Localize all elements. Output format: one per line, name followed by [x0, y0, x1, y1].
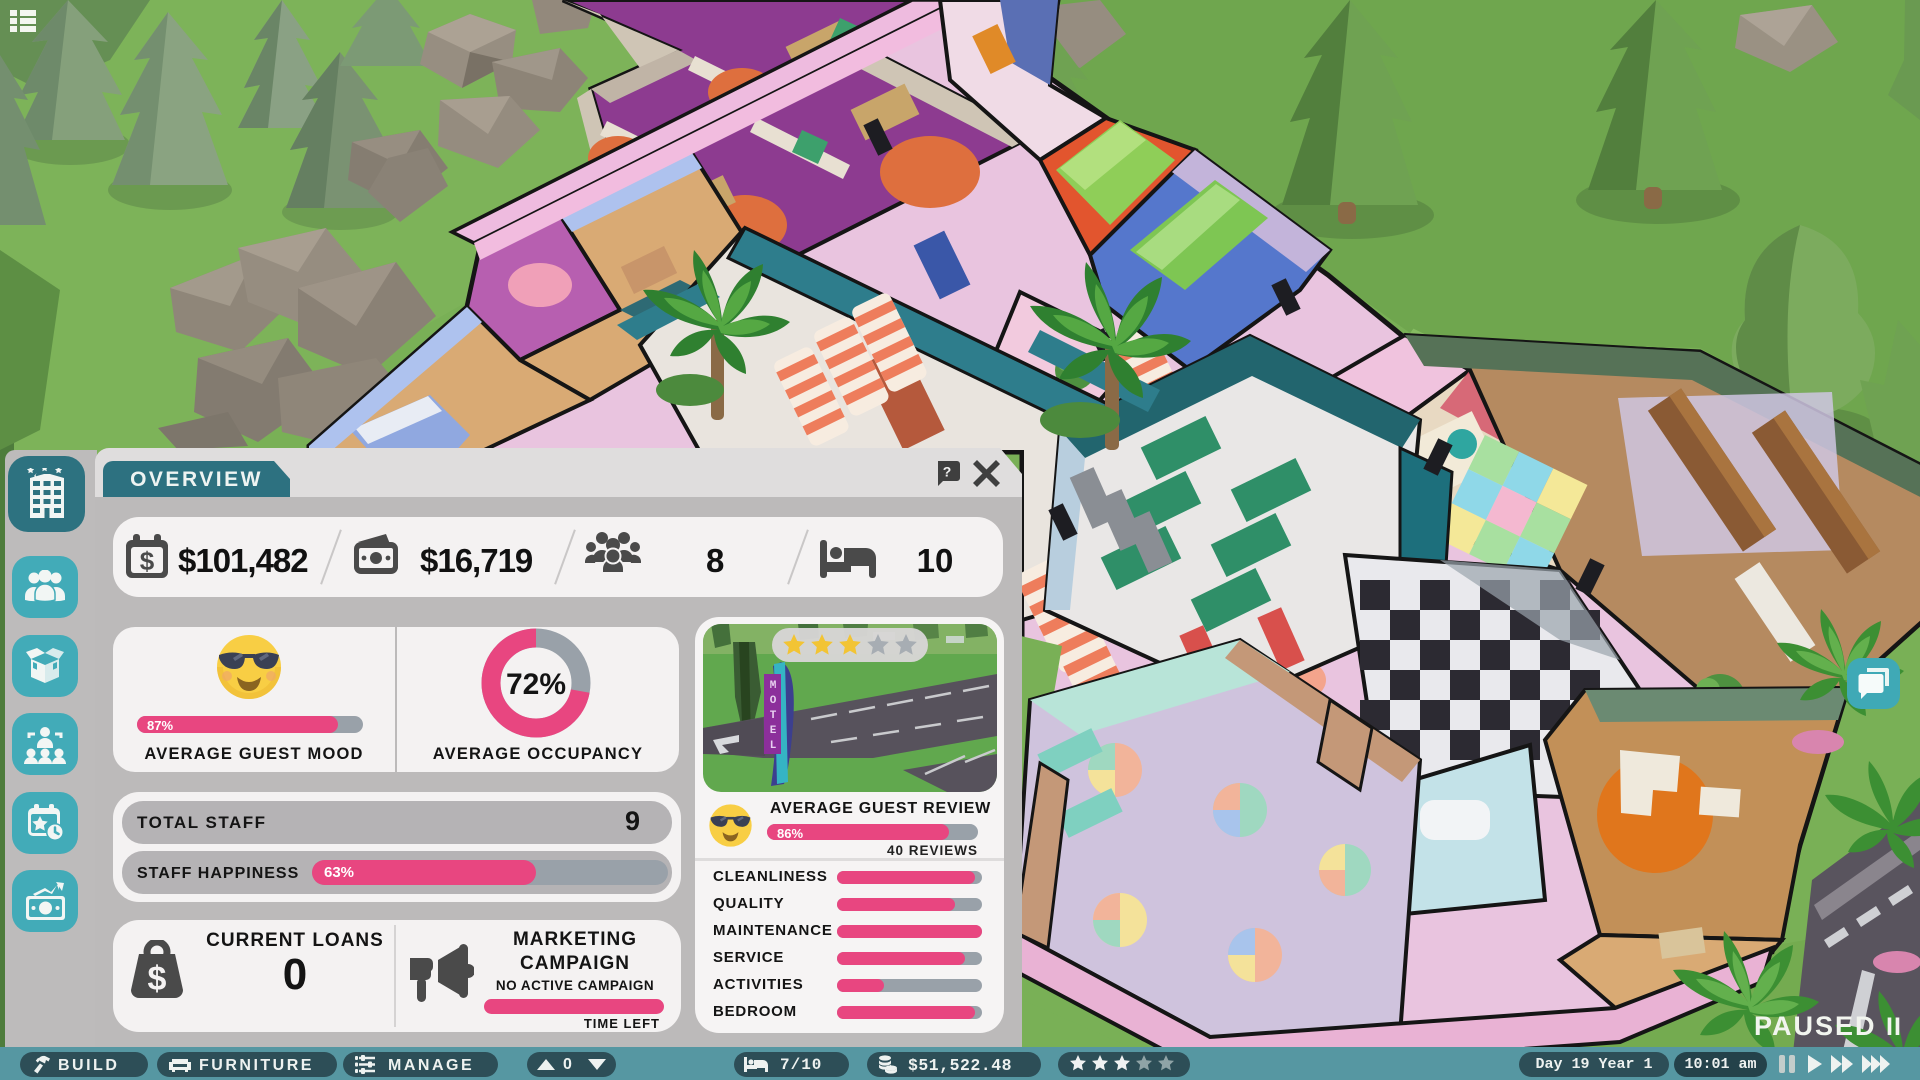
svg-text:$: $	[148, 960, 167, 998]
svg-text:$: $	[140, 546, 155, 576]
svg-text:M: M	[770, 680, 777, 692]
svg-text:72%: 72%	[506, 668, 566, 701]
svg-text:E: E	[770, 725, 777, 737]
svg-text:L: L	[770, 740, 777, 752]
svg-text:?: ?	[943, 464, 952, 480]
svg-text:T: T	[770, 710, 777, 722]
svg-text:O: O	[770, 695, 777, 707]
